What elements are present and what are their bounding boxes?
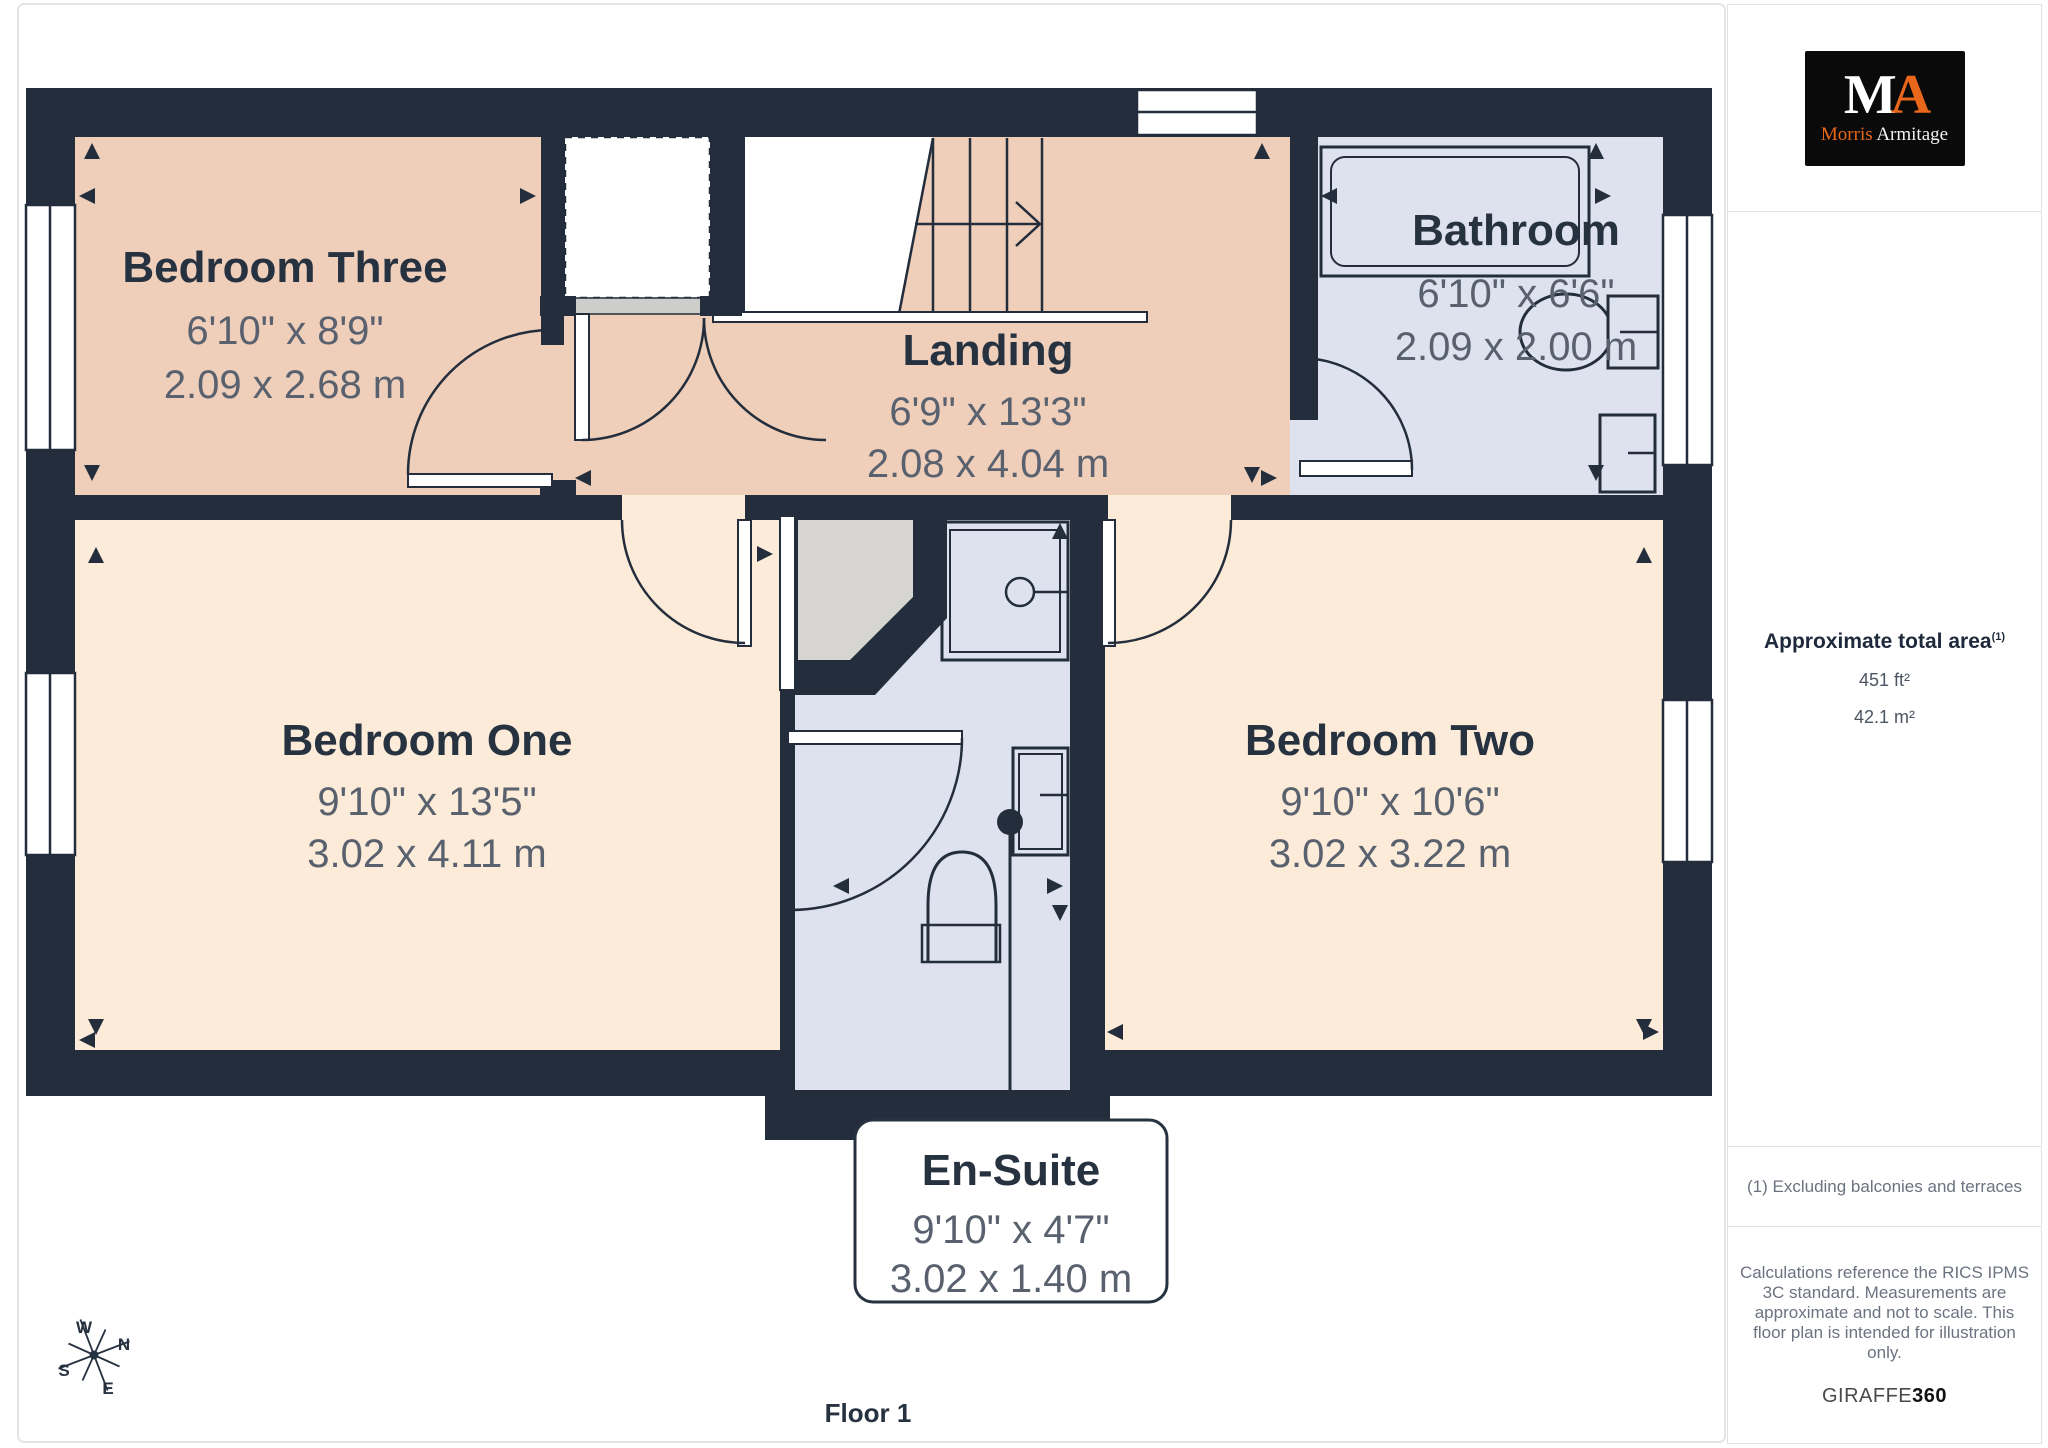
label-bedroom-two: Bedroom Two: [1245, 716, 1535, 765]
window-bedroom-two: [1663, 700, 1712, 862]
door-leaf-bedroom-one: [738, 520, 751, 646]
area-title-text: Approximate total area: [1764, 630, 1992, 653]
logo-section: MA Morris Armitage: [1728, 5, 2041, 212]
agency-logo: MA Morris Armitage: [1805, 51, 1965, 166]
dim-imperial-landing: 6'9" x 13'3": [889, 390, 1086, 434]
area-title-superscript: (1): [1992, 631, 2005, 643]
giraffe-brand-number: 360: [1912, 1385, 1947, 1407]
logo-name-first: Morris: [1821, 124, 1873, 145]
callout-dot: [997, 809, 1023, 835]
label-bathroom: Bathroom: [1412, 206, 1620, 255]
area-imperial: 451 ft²: [1859, 670, 1910, 691]
bathroom-door-opening: [1290, 420, 1318, 495]
cupboard-sill: [565, 298, 712, 314]
dim-metric-ensuite: 3.02 x 1.40 m: [890, 1257, 1132, 1301]
logo-wordmark: Morris Armitage: [1821, 124, 1948, 146]
compass-west: W: [76, 1318, 93, 1337]
footnote-section: (1) Excluding balconies and terraces: [1728, 1147, 2041, 1227]
compass-south: S: [58, 1361, 69, 1380]
logo-monogram: MA: [1844, 70, 1925, 120]
disclaimer-text: Calculations reference the RICS IPMS 3C …: [1739, 1263, 2031, 1363]
bedroom-one-door-opening: [622, 495, 745, 520]
window-landing-top: [1137, 90, 1257, 135]
giraffe-brand-name: GIRAFFE: [1822, 1385, 1912, 1407]
stair-rail: [713, 312, 1147, 322]
footnote-text: (1) Excluding balconies and terraces: [1747, 1177, 2022, 1197]
area-metric: 42.1 m²: [1854, 707, 1915, 728]
compass-center: [90, 1351, 99, 1360]
compass-east: E: [102, 1379, 113, 1398]
area-title: Approximate total area(1): [1764, 630, 2005, 654]
label-bedroom-three: Bedroom Three: [122, 243, 447, 292]
floorplan-page: Bedroom Three 6'10" x 8'9" 2.09 x 2.68 m…: [0, 0, 2048, 1448]
logo-name-second: Armitage: [1876, 124, 1948, 145]
dim-imperial-bedroom-one: 9'10" x 13'5": [317, 780, 536, 824]
dim-imperial-bedroom-two: 9'10" x 10'6": [1280, 780, 1499, 824]
dim-imperial-ensuite: 9'10" x 4'7": [912, 1208, 1109, 1252]
compass-north: N: [118, 1335, 130, 1354]
dim-imperial-bedroom-three: 6'10" x 8'9": [186, 309, 383, 353]
dim-metric-bedroom-one: 3.02 x 4.11 m: [307, 832, 546, 876]
door-leaf-bathroom: [1300, 461, 1412, 476]
door-leaf-cupboard: [575, 314, 589, 440]
window-bathroom: [1663, 215, 1712, 465]
logo-letter-a: A: [1891, 64, 1925, 126]
floor-title: Floor 1: [825, 1398, 912, 1428]
window-bedroom-one: [26, 673, 75, 855]
dim-metric-landing: 2.08 x 4.04 m: [867, 442, 1109, 486]
window-bedroom-three: [26, 205, 75, 450]
label-ensuite: En-Suite: [922, 1146, 1100, 1195]
door-leaf-bedroom-two: [1102, 520, 1115, 646]
door-leaf-ensuite: [788, 731, 962, 744]
logo-letter-m: M: [1844, 64, 1891, 126]
total-area-section: Approximate total area(1) 451 ft² 42.1 m…: [1728, 212, 2041, 1147]
info-sidebar: MA Morris Armitage Approximate total are…: [1727, 4, 2042, 1444]
giraffe360-brand: GIRAFFE360: [1822, 1385, 1947, 1408]
dim-imperial-bathroom: 6'10" x 6'6": [1417, 272, 1614, 316]
ensuite-pocket-door: [780, 516, 795, 690]
label-landing: Landing: [902, 326, 1073, 375]
dim-metric-bedroom-three: 2.09 x 2.68 m: [164, 363, 406, 407]
disclaimer-section: Calculations reference the RICS IPMS 3C …: [1728, 1227, 2041, 1443]
bedroom-two-door-opening: [1108, 495, 1231, 520]
door-leaf-bedroom-three: [408, 474, 552, 487]
cupboard: [565, 137, 710, 298]
label-bedroom-one: Bedroom One: [282, 716, 573, 765]
dim-metric-bathroom: 2.09 x 2.00 m: [1395, 325, 1637, 369]
compass-rose: W N S E: [58, 1318, 130, 1398]
dim-metric-bedroom-two: 3.02 x 3.22 m: [1269, 832, 1511, 876]
